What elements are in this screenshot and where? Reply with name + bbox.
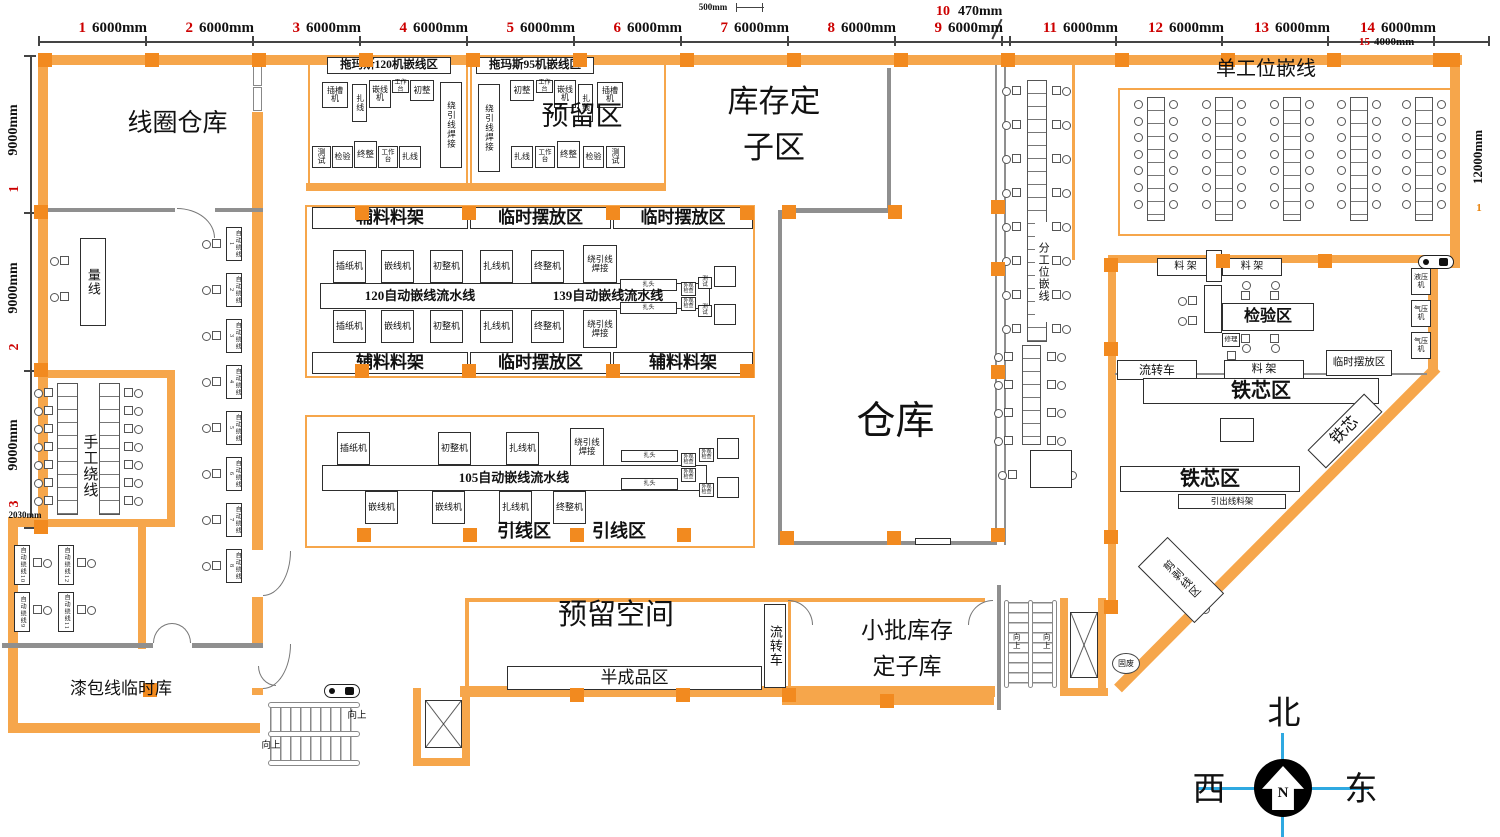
workstation-chair (1270, 133, 1279, 142)
workstation (1047, 380, 1056, 389)
column (1216, 254, 1230, 268)
column (680, 53, 694, 67)
gray-wall (785, 208, 895, 213)
vehicle-icon (324, 684, 360, 698)
workstation (1052, 222, 1061, 231)
grid-number: 4 (359, 20, 407, 36)
workstation-chair (1202, 133, 1211, 142)
workstation (124, 460, 133, 469)
gray-wall (2, 643, 153, 648)
winding-bench (99, 383, 120, 515)
wall (138, 519, 146, 649)
workstation (212, 331, 221, 340)
machine-head: 扎头 (621, 450, 678, 462)
dim-tick (573, 36, 575, 46)
dim-tick (359, 36, 361, 46)
workstation-chair (1237, 100, 1246, 109)
column (462, 206, 476, 220)
machine-tie: 扎线 (399, 146, 421, 168)
workstation (212, 239, 221, 248)
dim-length: 6000mm (520, 20, 573, 36)
workstation-chair (1337, 166, 1346, 175)
zone-lead: 引线区 (493, 520, 555, 542)
station-auto-winding: 自动绕线10 (14, 545, 30, 585)
workstation (44, 424, 53, 433)
machine-check: 检验 (332, 146, 353, 168)
dim-tick (1221, 36, 1223, 46)
workstation (1188, 316, 1197, 325)
workstation-chair (1305, 133, 1314, 142)
workstation (1227, 351, 1236, 360)
column (780, 531, 794, 545)
stair-rail (268, 731, 360, 737)
floor-plan: 16000mm26000mm36000mm46000mm56000mm66000… (0, 0, 1500, 837)
elevator (1070, 612, 1098, 678)
dim-length: 9000mm (6, 400, 22, 490)
zone-aux-rack: 辅料料架 (613, 352, 753, 374)
workstation (1052, 154, 1061, 163)
workstation-chair (1337, 200, 1346, 209)
grid-number: 5 (466, 20, 514, 36)
workstation-chair (1202, 100, 1211, 109)
dim-line (30, 55, 32, 527)
column (676, 688, 690, 702)
dim-length: 6000mm (1381, 20, 1433, 36)
workstation (1012, 256, 1021, 265)
column (677, 528, 691, 542)
column (357, 528, 371, 542)
workstation-chair (1237, 133, 1246, 142)
station-auto-winding: 自动绕线7 (226, 503, 242, 537)
room-label-batch-2: 定子库 (856, 652, 958, 682)
station-auto-winding: 自动绕线6 (226, 457, 242, 491)
grid-number: 2 (8, 337, 22, 357)
dim-length: 6000mm (1169, 20, 1221, 36)
zone-temp: 临时摆放区 (470, 352, 611, 374)
column (991, 200, 1005, 214)
workstation-chair (1305, 200, 1314, 209)
zone-aux-rack: 辅料料架 (312, 207, 468, 229)
gray-wall (997, 585, 1001, 710)
machine: 初整机 (430, 250, 463, 283)
machine-visual: 外观检查 (699, 483, 714, 497)
vehicle-icon (1418, 255, 1454, 269)
workstation (1052, 120, 1061, 129)
equipment-box (1220, 418, 1254, 442)
workstation-chair (1437, 166, 1446, 175)
workstation (1052, 256, 1061, 265)
wall (252, 112, 263, 550)
room-label-enamel-temp: 漆包线临时库 (45, 679, 197, 699)
grid-number: 10 (928, 5, 950, 19)
column (1433, 53, 1447, 67)
workstation-chair (1437, 183, 1446, 192)
wall (8, 723, 260, 733)
grid-number: 3 (252, 20, 300, 36)
machine-weld: 绕引线焊接 (583, 245, 617, 283)
workstation (212, 515, 221, 524)
workstation-chair (1372, 117, 1381, 126)
column (1115, 53, 1129, 67)
door-slab (915, 538, 951, 545)
machine-weld: 绕引线焊接 (478, 84, 500, 172)
cart-box-vertical: 流转车 (764, 604, 786, 688)
workstation (212, 377, 221, 386)
workstation-chair (1402, 200, 1411, 209)
room-label-stock-stator-2: 子区 (718, 128, 830, 168)
workstation-chair (1270, 100, 1279, 109)
workstation (1188, 296, 1197, 305)
workstation-chair (1202, 183, 1211, 192)
workstation-chair (1402, 133, 1411, 142)
machine-pneumatic: 气压机 (1411, 300, 1431, 327)
workstation (124, 442, 133, 451)
grid-number: 1 (8, 179, 22, 199)
workstation-chair (1169, 133, 1178, 142)
column (1327, 53, 1341, 67)
dim-length: 6000mm (1063, 20, 1115, 36)
workstation-chair (1134, 133, 1143, 142)
workstation-chair (1437, 200, 1446, 209)
workstation (1004, 408, 1013, 417)
dim-tick (1488, 36, 1490, 46)
workstation-chair (1402, 183, 1411, 192)
column (462, 364, 476, 378)
column (782, 205, 796, 219)
machine-test: 测试 (312, 146, 331, 168)
gray-wall (38, 208, 175, 212)
stair-rail (1004, 600, 1009, 688)
diagonal-wall (1114, 364, 1440, 692)
machine-visual: 外观检查 (699, 448, 714, 462)
column (1446, 53, 1460, 67)
workstation (1012, 290, 1021, 299)
side-table (1204, 285, 1222, 333)
workstation-chair (1169, 150, 1178, 159)
grid-number: 6 (573, 20, 621, 36)
workstation-chair (1402, 100, 1411, 109)
workstation-chair (1402, 166, 1411, 175)
door-arc (177, 208, 215, 238)
dim-length: 9000mm (6, 243, 22, 333)
workstation (1052, 290, 1061, 299)
dim-tick (145, 36, 147, 46)
column (787, 53, 801, 67)
column (1104, 342, 1118, 356)
dim-tick (466, 36, 468, 46)
column (570, 688, 584, 702)
solid-waste: 固废 (1112, 653, 1140, 674)
workstation (212, 561, 221, 570)
stair-rail (1052, 600, 1057, 688)
workstation-chair (1202, 166, 1211, 175)
door-arc (153, 623, 172, 643)
workstation-chair (1134, 117, 1143, 126)
compass-west: 西 (1189, 770, 1229, 810)
up-label: 向上 (258, 740, 284, 752)
workstation-chair (1202, 117, 1211, 126)
wall (1072, 55, 1075, 260)
workstation-chair (1237, 183, 1246, 192)
workstation (60, 292, 69, 301)
zone-core: 铁芯区 (1143, 378, 1379, 404)
inspection-table: 检验区 (1222, 303, 1314, 331)
machine: 初整机 (430, 310, 463, 343)
machine-pneumatic: 气压机 (1411, 332, 1431, 359)
dim-tick (24, 55, 36, 57)
column (570, 528, 584, 542)
zone-temp: 临时摆放区 (470, 207, 611, 229)
machine-bench: 工作台 (535, 146, 555, 168)
workstation-chair (1437, 117, 1446, 126)
split-bench (1022, 345, 1041, 445)
column (252, 53, 266, 67)
room-label-stock-stator-1: 库存定 (698, 82, 850, 122)
stair-rail (1028, 600, 1033, 688)
wall (252, 597, 263, 643)
workstation (1012, 120, 1021, 129)
workstation-chair (1372, 183, 1381, 192)
door-arc (258, 666, 276, 686)
dim-length: 12000mm (1470, 116, 1486, 198)
workstation-chair (1270, 117, 1279, 126)
workstation-chair (1372, 100, 1381, 109)
column (880, 694, 894, 708)
workstation-chair (1437, 100, 1446, 109)
workstation-chair (1305, 183, 1314, 192)
single-bench (1283, 97, 1301, 221)
dim-length: 6000mm (627, 20, 680, 36)
single-bench (1415, 97, 1433, 221)
machine: 扎线机 (506, 432, 539, 465)
workstation-chair (1305, 150, 1314, 159)
column (573, 53, 587, 67)
compass-north: 北 (1264, 694, 1304, 734)
machine: 终整机 (531, 310, 564, 343)
zone-temp: 临时摆放区 (613, 207, 753, 229)
workstation (77, 605, 86, 614)
column (887, 531, 901, 545)
grid-number: 7 (680, 20, 728, 36)
equipment-box (717, 438, 739, 459)
room-label-single-station: 单工位嵌线 (1210, 56, 1322, 82)
grid-number: 15 (1352, 36, 1370, 48)
semi-finished-box: 半成品区 (507, 666, 762, 690)
wall (465, 598, 985, 602)
machine-head: 扎头 (621, 478, 678, 490)
workstation-chair (1237, 166, 1246, 175)
dim-tick (680, 36, 682, 46)
dim-line (38, 41, 1490, 43)
workstation (1012, 154, 1021, 163)
workstation (44, 406, 53, 415)
column (888, 205, 902, 219)
up-label: 向上 (344, 710, 370, 722)
workstation-chair (1372, 150, 1381, 159)
room-label-coil-warehouse: 线圈仓库 (95, 108, 260, 140)
column (991, 528, 1005, 542)
dim-tick (736, 3, 737, 12)
rack-box: 料 架 (1222, 258, 1282, 276)
gray-wall (215, 208, 263, 212)
workstation (124, 424, 133, 433)
machine-visual: 外观检查 (681, 468, 696, 482)
wall (462, 688, 470, 766)
column (782, 688, 796, 702)
workstation-chair (1402, 117, 1411, 126)
station-auto-winding: 自动绕线5 (226, 411, 242, 445)
workstation-chair (1337, 183, 1346, 192)
machine: 初整机 (438, 432, 471, 465)
station-auto-winding: 自动绕线12 (58, 545, 74, 585)
machine: 插纸机 (333, 250, 366, 283)
workstation (1012, 188, 1021, 197)
workstation (1052, 86, 1061, 95)
gray-wall (887, 68, 891, 210)
workstation-chair (1169, 200, 1178, 209)
workstation (77, 558, 86, 567)
machine-pre: 初整 (410, 80, 434, 101)
machine: 扎线机 (480, 250, 513, 283)
dim-tick (1327, 36, 1329, 46)
station-auto-winding: 自动绕线2 (226, 273, 242, 307)
up-label: 向上 (1040, 628, 1052, 654)
dim-length: 470mm (958, 5, 1018, 19)
door-arc (263, 551, 291, 596)
machine-final: 终整 (557, 141, 580, 168)
column (463, 528, 477, 542)
room-label-batch-1: 小批库存 (843, 616, 971, 646)
workstation-chair (1305, 166, 1314, 175)
station-auto-winding: 自动绕线9 (14, 592, 30, 632)
machine: 嵌线机 (381, 310, 414, 343)
workstation-chair (1402, 150, 1411, 159)
workstation-chair (1305, 117, 1314, 126)
line-label-139: 139自动嵌线流水线 (528, 288, 688, 304)
column (34, 205, 48, 219)
gray-wall (192, 643, 263, 648)
machine-bench: 工作台 (392, 80, 409, 93)
dim-tick (1001, 36, 1003, 46)
machine-weld: 绕引线焊接 (583, 310, 617, 348)
grid-number: 14 (1327, 20, 1375, 36)
dim-line (736, 7, 764, 8)
workstation (124, 496, 133, 505)
wall (1060, 598, 1068, 696)
lead-out-rack: 引出线料架 (1178, 494, 1286, 509)
workstation-chair (1372, 133, 1381, 142)
machine: 插纸机 (337, 432, 370, 465)
workstation-chair (1202, 200, 1211, 209)
winding-bench (57, 383, 78, 515)
workstation-chair (1134, 100, 1143, 109)
room-label-reserved-space: 预留空间 (548, 596, 684, 634)
grid-number: 2 (145, 20, 193, 36)
machine-bench: 工作台 (536, 80, 553, 93)
dim-tick (762, 3, 763, 12)
column (894, 53, 908, 67)
column (1318, 254, 1332, 268)
workstation (124, 406, 133, 415)
workstation-chair (1270, 183, 1279, 192)
machine-bench: 工作台 (378, 146, 398, 168)
workstation-chair (1134, 166, 1143, 175)
workstation-chair (1437, 133, 1446, 142)
dim-length: 6000mm (306, 20, 359, 36)
workstation-chair (1372, 166, 1381, 175)
workstation-chair (1169, 100, 1178, 109)
machine: 嵌线机 (381, 250, 414, 283)
machine-test: 测试 (698, 277, 712, 289)
door-arc (968, 600, 993, 625)
door-arc (172, 623, 191, 643)
column (606, 364, 620, 378)
workstation (1052, 188, 1061, 197)
machine: 扎线机 (480, 310, 513, 343)
workstation (212, 423, 221, 432)
equipment-box (714, 304, 736, 325)
workstation (1241, 291, 1250, 300)
column (466, 53, 480, 67)
grid-number: 13 (1221, 20, 1269, 36)
column (34, 363, 48, 377)
workstation (124, 388, 133, 397)
column (1001, 53, 1015, 67)
machine-test: 测试 (606, 146, 625, 168)
workstation (124, 478, 133, 487)
workstation (1047, 436, 1056, 445)
room-label-manual-winding: 手工绕线 (80, 418, 98, 513)
strip-zone-box: 剪剥线区 (1138, 537, 1224, 623)
workstation-chair (1237, 200, 1246, 209)
wall (167, 370, 175, 527)
dim-length: 2030mm (2, 510, 48, 521)
line-label-105: 105自动嵌线流水线 (428, 470, 600, 486)
column (34, 520, 48, 534)
workstation (1012, 86, 1021, 95)
wall (38, 370, 175, 378)
zone-core: 铁芯区 (1120, 466, 1300, 492)
workstation (44, 496, 53, 505)
workstation (1047, 408, 1056, 417)
dim-tick (894, 36, 896, 46)
workstation-chair (1305, 100, 1314, 109)
workstation-chair (1270, 150, 1279, 159)
equipment-box (714, 266, 736, 287)
dim-length: 9000mm (6, 85, 22, 175)
grid-number: 9 (894, 20, 942, 36)
machine-hydraulic: 液压机 (1411, 268, 1431, 295)
station-auto-winding: 自动绕线4 (226, 365, 242, 399)
dim-length: 6000mm (199, 20, 252, 36)
machine: 终整机 (553, 491, 586, 524)
workstation-chair (1134, 183, 1143, 192)
grid-number: 1 (38, 20, 86, 36)
up-label: 向上 (1010, 628, 1022, 654)
column (1104, 530, 1118, 544)
workstation-chair (1372, 200, 1381, 209)
workstation-chair (1270, 166, 1279, 175)
repair-box: 修理 (1222, 333, 1240, 347)
elevator (425, 700, 462, 748)
workstation (44, 478, 53, 487)
room-label-warehouse: 仓库 (848, 398, 943, 446)
workstation (44, 442, 53, 451)
workstation (33, 558, 42, 567)
workstation (33, 605, 42, 614)
wall (252, 688, 263, 695)
zone-lead: 引线区 (588, 520, 650, 542)
